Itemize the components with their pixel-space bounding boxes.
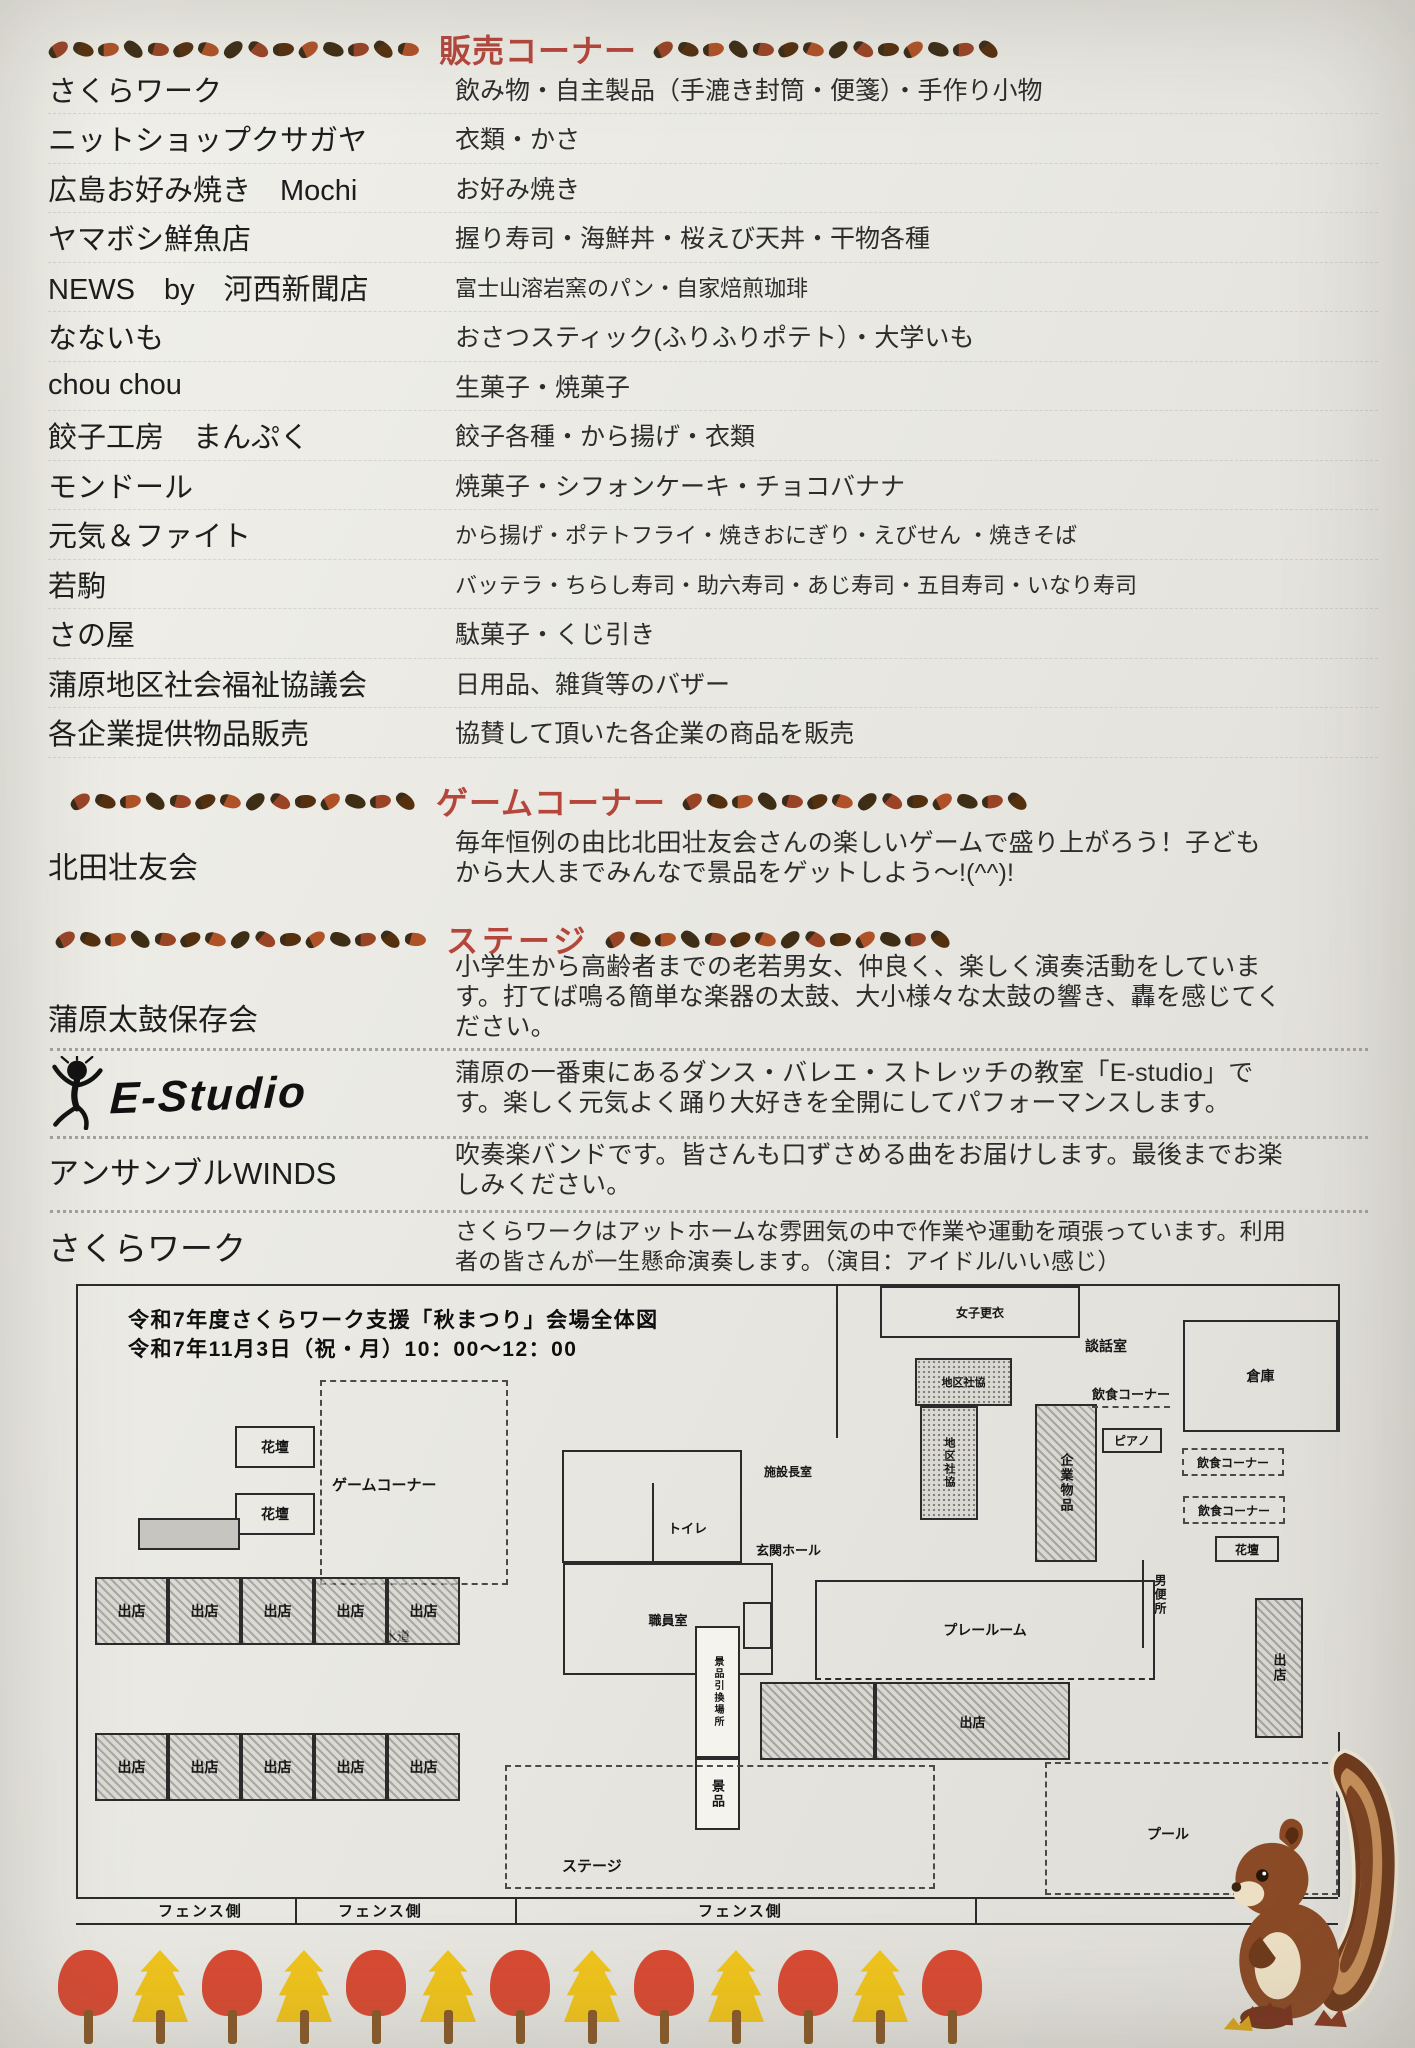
acorn-icon: [393, 789, 417, 812]
acorn-icon: [97, 41, 120, 57]
dotted-separator: [50, 1136, 1368, 1139]
acorn-icon: [371, 37, 395, 60]
acorn-icon: [303, 928, 328, 951]
vendor-row: 若駒バッテラ・ちらし寿司・助六寿司・あじ寿司・五目寿司・いなり寿司: [48, 559, 1378, 609]
vendor-row: chou chou生菓子・焼菓子: [48, 361, 1378, 411]
map-room-出店: 出店: [875, 1682, 1070, 1760]
tree-trunk: [660, 2010, 669, 2044]
acorn-garland: [682, 781, 1032, 821]
acorn-icon: [93, 791, 117, 810]
acorn-icon: [197, 40, 221, 58]
vendor-items: 衣類・かさ: [455, 120, 580, 156]
performer-description: さくらワークはアットホームな雰囲気の中で作業や運動を頑張っています。利用者の皆さ…: [455, 1216, 1295, 1276]
vendor-row: モンドール焼菓子・シフォンケーキ・チョコバナナ: [48, 460, 1378, 510]
map-stall-label: 出店: [337, 1757, 365, 1777]
vendor-row: なないもおさつスティック(ふりふりポテト）・大学いも: [48, 312, 1378, 362]
acorn-icon: [243, 789, 267, 812]
vendor-items: バッテラ・ちらし寿司・助六寿司・あじ寿司・五目寿司・いなり寿司: [455, 568, 1137, 600]
tree-trunk: [156, 2010, 165, 2044]
map-stall-label: 出店: [118, 1601, 146, 1621]
acorn-icon: [46, 38, 71, 61]
map-stall-label: 出店: [264, 1757, 292, 1777]
map-room-box: [760, 1682, 875, 1760]
map-label-談話室: 談話室: [1085, 1336, 1127, 1356]
map-room-倉庫: 倉庫: [1183, 1320, 1338, 1432]
tree-trunk: [804, 2010, 813, 2044]
map-room-プレールーム: プレールーム: [815, 1580, 1155, 1680]
vendor-items: 餃子各種・から揚げ・衣類: [455, 417, 755, 453]
performer-name: 北田壮友会: [48, 843, 198, 887]
map-room-label: 女子更衣: [956, 1304, 1004, 1321]
acorn-icon: [680, 790, 705, 813]
map-stall: 出店: [95, 1577, 168, 1645]
acorn-icon: [171, 39, 196, 60]
dancer-icon: [50, 1056, 104, 1135]
map-room-label: ゲームコーナー: [332, 1474, 437, 1495]
vendor-items: 生菓子・焼菓子: [455, 368, 630, 404]
vendor-items: 協賛して頂いた各企業の商品を販売: [455, 714, 854, 750]
acorn-icon: [268, 790, 293, 812]
dotted-separator: [50, 1210, 1368, 1213]
vendor-items: おさつスティック(ふりふりポテト）・大学いも: [455, 318, 974, 354]
tree-trunk: [876, 2010, 885, 2044]
acorn-icon: [318, 790, 343, 813]
acorn-icon: [347, 41, 370, 57]
acorn-icon: [279, 932, 301, 947]
acorn-icon: [831, 792, 855, 810]
map-room-box: [138, 1518, 240, 1550]
vendor-items: 富士山溶岩窯のパン・自家焙煎珈琲: [455, 271, 808, 303]
tree-trunk: [84, 2010, 93, 2044]
vendor-row: ヤマボシ鮮魚店握り寿司・海鮮丼・桜えび天丼・干物各種: [48, 213, 1378, 263]
acorn-icon: [654, 931, 677, 947]
performer-name: アンサンブルWINDS: [48, 1148, 336, 1193]
map-wall: [515, 1897, 517, 1923]
acorn-icon: [879, 929, 903, 948]
vendor-name: chou chou: [48, 369, 455, 402]
acorn-icon: [321, 39, 345, 58]
acorn-icon: [755, 789, 779, 812]
vendor-name: さくらワーク: [48, 68, 455, 110]
map-stall-label: 出店: [337, 1601, 365, 1621]
map-room-label: 企業物品: [1057, 1453, 1076, 1513]
acorn-icon: [128, 927, 152, 950]
autumn-tree: [775, 1950, 841, 2046]
map-wall: [836, 1286, 838, 1438]
map-stall-label: 出店: [410, 1757, 438, 1777]
map-room-box: [743, 1602, 772, 1649]
map-wall: [76, 1284, 778, 1286]
acorn-icon: [294, 794, 316, 809]
map-room-label: 景品引換場所: [710, 1656, 725, 1728]
vendor-name: なないも: [48, 315, 455, 357]
performer-name: さくらワーク: [48, 1222, 246, 1270]
map-room-ピアノ: ピアノ: [1102, 1428, 1162, 1453]
acorn-icon: [752, 42, 774, 57]
performer-name: 蒲原太鼓保存会: [48, 995, 258, 1039]
acorn-icon: [328, 929, 352, 948]
map-room-label: 地区社協: [941, 1437, 957, 1489]
map-room-花壇: 花壇: [235, 1493, 315, 1535]
vendor-name: 蒲原地区社会福祉協議会: [48, 662, 455, 704]
estudio-logo-text: E-Studio: [109, 1067, 308, 1124]
vendor-name: NEWS by 河西新聞店: [48, 266, 455, 308]
acorn-icon: [726, 37, 750, 60]
acorn-icon: [68, 790, 93, 813]
vendor-items: 駄菓子・くじ引き: [455, 615, 655, 651]
map-stall: 出店: [387, 1577, 460, 1645]
acorn-icon: [221, 37, 245, 60]
acorn-icon: [253, 928, 278, 950]
map-wall: [76, 1284, 78, 1897]
map-room-label: 倉庫: [1247, 1366, 1275, 1386]
map-room-女子更衣: 女子更衣: [880, 1286, 1080, 1338]
autumn-tree: [271, 1950, 337, 2046]
vendor-row: 蒲原地区社会福祉協議会日用品、雑貨等のバザー: [48, 658, 1378, 708]
acorn-icon: [904, 931, 927, 947]
acorn-icon: [880, 790, 905, 812]
map-room-label: 花壇: [261, 1437, 289, 1457]
acorn-icon: [78, 929, 102, 948]
map-stall: 出店: [95, 1733, 168, 1801]
map-stall-label: 出店: [410, 1601, 438, 1621]
autumn-tree: [919, 1950, 985, 2046]
map-room-label: 飲食コーナー: [1197, 1454, 1269, 1471]
vendor-name: 若駒: [48, 563, 455, 605]
vendor-row: 餃子工房 まんぷく餃子各種・から揚げ・衣類: [48, 411, 1378, 461]
acorn-icon: [779, 927, 803, 950]
acorn-icon: [369, 793, 392, 809]
tree-trunk: [948, 2010, 957, 2044]
map-stall: 出店: [168, 1577, 241, 1645]
acorn-icon: [219, 792, 243, 810]
acorn-icon: [877, 42, 899, 57]
acorn-icon: [1005, 789, 1029, 812]
tree-canopy: [346, 1950, 406, 2016]
acorn-icon: [952, 41, 975, 57]
autumn-tree: [703, 1950, 769, 2046]
vendor-row: NEWS by 河西新聞店富士山溶岩窯のパン・自家焙煎珈琲: [48, 262, 1378, 312]
map-room-出店: 出店: [1255, 1598, 1303, 1738]
map-room-ステージ: ステージ: [505, 1765, 935, 1889]
map-room-地区社協: 地区社協: [920, 1406, 978, 1520]
tree-canopy: [490, 1950, 550, 2016]
acorn-icon: [930, 790, 955, 813]
autumn-tree: [343, 1950, 409, 2046]
acorn-garland: [653, 29, 1003, 69]
vendor-name: ニットショップクサガヤ: [48, 117, 455, 159]
map-room-飲食コーナー: 飲食コーナー: [1183, 1496, 1285, 1524]
vendor-row: 広島お好み焼き Mochiお好み焼き: [48, 163, 1378, 213]
map-room-企業物品: 企業物品: [1035, 1404, 1097, 1562]
acorn-icon: [981, 793, 1004, 809]
acorn-icon: [776, 39, 801, 60]
acorn-icon: [679, 927, 703, 950]
acorn-icon: [702, 41, 725, 57]
venue-map: 令和7年度さくらワーク支援「秋まつり」会場全体図 令和7年11月3日（祝・月）1…: [70, 1280, 1347, 1942]
vendor-name: 広島お好み焼き Mochi: [48, 167, 455, 209]
acorn-icon: [705, 932, 727, 947]
autumn-tree: [487, 1950, 553, 2046]
tree-canopy: [634, 1950, 694, 2016]
tree-canopy: [202, 1950, 262, 2016]
acorn-icon: [830, 932, 852, 947]
acorn-icon: [143, 789, 167, 812]
acorn-icon: [121, 37, 145, 60]
map-stall-label: 出店: [264, 1601, 292, 1621]
map-room-景品引換場所: 景品引換場所: [695, 1626, 740, 1758]
autumn-tree: [127, 1950, 193, 2046]
map-wall: [975, 1897, 977, 1923]
acorn-icon: [729, 929, 754, 950]
dotted-separator: [50, 1048, 1368, 1051]
vendor-items: 日用品、雑貨等のバザー: [455, 665, 730, 701]
map-label-玄関ホール: 玄関ホール: [756, 1540, 821, 1559]
acorn-garland: [55, 919, 430, 959]
acorn-icon: [204, 930, 228, 948]
map-room-花壇: 花壇: [1215, 1536, 1279, 1562]
vendor-items: 握り寿司・海鮮丼・桜えび天丼・干物各種: [455, 219, 930, 255]
tree-trunk: [300, 2010, 309, 2044]
acorn-icon: [926, 39, 950, 58]
acorn-icon: [246, 38, 271, 60]
vendor-row: さの屋駄菓子・くじ引き: [48, 609, 1378, 659]
map-room-label: プール: [1147, 1824, 1189, 1844]
autumn-tree: [199, 1950, 265, 2046]
acorn-icon: [676, 39, 700, 58]
acorn-icon: [826, 37, 850, 60]
autumn-tree: [559, 1950, 625, 2046]
acorn-icon: [955, 791, 979, 810]
squirrel-illustration: [1222, 1733, 1414, 2046]
map-stall: 出店: [387, 1733, 460, 1801]
acorn-icon: [782, 794, 804, 809]
map-wall: [295, 1897, 297, 1923]
acorn-icon: [851, 38, 876, 60]
acorn-icon: [178, 929, 203, 950]
autumn-tree: [847, 1950, 913, 2046]
map-stall: 出店: [314, 1577, 387, 1645]
map-title-line1: 令和7年度さくらワーク支援「秋まつり」会場全体図: [128, 1304, 659, 1334]
map-room-label: プレールーム: [943, 1620, 1027, 1640]
acorn-icon: [705, 791, 729, 810]
map-room-label: ピアノ: [1114, 1432, 1150, 1449]
vendor-items: 焼菓子・シフォンケーキ・チョコバナナ: [455, 467, 905, 503]
map-room-box: [562, 1450, 742, 1563]
acorn-icon: [629, 929, 653, 948]
acorn-icon: [929, 927, 953, 950]
acorn-icon: [901, 38, 926, 61]
autumn-tree: [415, 1950, 481, 2046]
vendor-name: 餃子工房 まんぷく: [48, 414, 455, 456]
vendor-row: 元気＆ファイトから揚げ・ポテトフライ・焼きおにぎり・えびせん ・焼きそば: [48, 510, 1378, 560]
map-label-飲食コーナー: 飲食コーナー: [1092, 1384, 1170, 1408]
tree-trunk: [516, 2010, 525, 2044]
tree-trunk: [372, 2010, 381, 2044]
tree-canopy: [922, 1950, 982, 2016]
acorn-icon: [731, 793, 754, 809]
tree-trunk: [588, 2010, 597, 2044]
acorn-icon: [854, 928, 879, 951]
acorn-icon: [404, 932, 426, 947]
vendor-items: から揚げ・ポテトフライ・焼きおにぎり・えびせん ・焼きそば: [455, 518, 1077, 550]
acorn-icon: [71, 39, 95, 58]
section-header-game: ゲームコーナー: [70, 778, 1032, 824]
acorn-icon: [193, 791, 218, 812]
performer-description: 毎年恒例の由比北田壮友会さんの楽しいゲームで盛り上がろう！子どもから大人までみん…: [455, 828, 1285, 888]
vendor-name: 元気＆ファイト: [48, 513, 455, 555]
tree-trunk: [444, 2010, 453, 2044]
acorn-icon: [397, 42, 419, 57]
acorn-icon: [976, 37, 1000, 60]
acorn-garland: [70, 781, 420, 821]
performer-description: 蒲原の一番東にあるダンス・バレエ・ストレッチの教室「E-studio」です。楽し…: [455, 1058, 1295, 1118]
map-room-label: 花壇: [1235, 1541, 1259, 1558]
map-room-label: 出店: [959, 1712, 985, 1731]
vendor-name: モンドール: [48, 464, 455, 506]
tree-trunk: [732, 2010, 741, 2044]
map-room-label: 出店: [1270, 1653, 1289, 1683]
acorn-icon: [378, 927, 402, 950]
vendor-name: ヤマボシ鮮魚店: [48, 216, 455, 258]
map-fence-label: フェンス側: [338, 1900, 423, 1921]
map-fence-label: フェンス側: [158, 1900, 243, 1921]
performer-description: 吹奏楽バンドです。皆さんも口ずさめる曲をお届けします。最後までお楽しみください。: [455, 1140, 1295, 1200]
map-wall: [76, 1923, 1338, 1925]
map-room-ゲームコーナー: ゲームコーナー: [320, 1380, 508, 1585]
festival-flyer: 販売コーナー さくらワーク飲み物・自主製品（手漉き封筒・便箋）・手作り小物ニット…: [0, 0, 1415, 2048]
acorn-icon: [53, 928, 78, 951]
acorn-icon: [119, 793, 142, 809]
acorn-icon: [804, 928, 829, 950]
acorn-garland: [48, 29, 423, 69]
section-title-game: ゲームコーナー: [436, 778, 666, 824]
estudio-logo: E-Studio: [50, 1056, 307, 1135]
acorn-icon: [147, 42, 169, 57]
map-wall: [1338, 1284, 1340, 1432]
tree-trunk: [228, 2010, 237, 2044]
map-room-label: ステージ: [562, 1855, 622, 1876]
acorn-icon: [104, 931, 127, 947]
map-stall: 出店: [314, 1733, 387, 1801]
vendor-row: 各企業提供物品販売協賛して頂いた各企業の商品を販売: [48, 708, 1378, 758]
acorn-icon: [228, 927, 252, 950]
tree-canopy: [58, 1950, 118, 2016]
map-room-職員室: 職員室: [563, 1563, 773, 1675]
acorn-icon: [343, 791, 367, 810]
acorn-icon: [651, 38, 676, 61]
map-stall: 出店: [241, 1577, 314, 1645]
acorn-icon: [907, 794, 929, 809]
map-room-飲食コーナー: 飲食コーナー: [1182, 1448, 1284, 1476]
autumn-tree: [631, 1950, 697, 2046]
acorn-icon: [272, 42, 294, 57]
acorn-icon: [169, 794, 191, 809]
acorn-icon: [754, 930, 778, 948]
acorn-icon: [354, 931, 377, 947]
map-title-line2: 令和7年11月3日（祝・月）10：00～12：00: [128, 1333, 578, 1363]
map-label-男便所: 男便所: [1152, 1574, 1169, 1616]
acorn-icon: [296, 38, 321, 61]
autumn-tree: [55, 1950, 121, 2046]
map-room-label: 職員室: [648, 1610, 687, 1629]
vendor-items: お好み焼き: [455, 170, 580, 206]
map-label-施設長室: 施設長室: [764, 1463, 812, 1480]
map-room-花壇: 花壇: [235, 1426, 315, 1468]
vendor-items: 飲み物・自主製品（手漉き封筒・便箋）・手作り小物: [455, 71, 1043, 107]
vendor-row: ニットショップクサガヤ衣類・かさ: [48, 114, 1378, 164]
tree-canopy: [778, 1950, 838, 2016]
acorn-icon: [802, 40, 826, 58]
map-stall-label: 出店: [191, 1757, 219, 1777]
performer-description: 小学生から高齢者までの老若男女、仲良く、楽しく演奏活動をしています。打てば鳴る簡…: [455, 952, 1295, 1042]
map-stall: 出店: [168, 1733, 241, 1801]
map-stall-label: 出店: [118, 1757, 146, 1777]
map-room-label: 花壇: [261, 1504, 289, 1524]
acorn-icon: [855, 789, 879, 812]
map-room-地区社協: 地区社協: [915, 1358, 1012, 1406]
map-stall: 出店: [241, 1733, 314, 1801]
acorn-icon: [805, 791, 830, 812]
vendor-row: さくらワーク飲み物・自主製品（手漉き封筒・便箋）・手作り小物: [48, 64, 1378, 114]
acorn-icon: [604, 928, 629, 951]
map-fence-label: フェンス側: [698, 1900, 783, 1921]
map-stall-label: 出店: [191, 1601, 219, 1621]
acorn-icon: [154, 932, 176, 947]
map-room-label: 地区社協: [942, 1374, 986, 1390]
vendor-name: 各企業提供物品販売: [48, 711, 455, 753]
vendor-name: さの屋: [48, 612, 455, 654]
map-label-トイレ: トイレ: [668, 1518, 707, 1537]
map-room-label: 飲食コーナー: [1198, 1502, 1270, 1519]
